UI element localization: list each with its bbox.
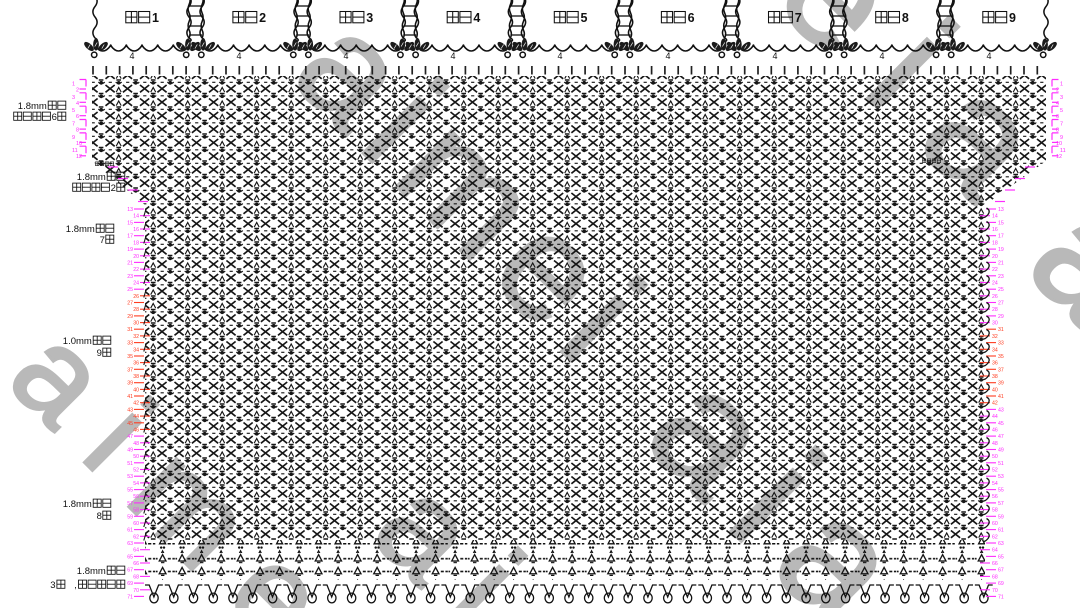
svg-text:26: 26	[992, 294, 998, 300]
svg-text:10: 10	[76, 141, 82, 147]
svg-text:46: 46	[992, 427, 998, 433]
svg-text:45: 45	[127, 421, 133, 427]
svg-text:58: 58	[992, 508, 998, 514]
svg-text:33: 33	[998, 341, 1004, 347]
svg-text:30: 30	[992, 321, 998, 327]
svg-text:47: 47	[127, 434, 133, 440]
svg-text:46: 46	[133, 427, 139, 433]
svg-text:1.0mm: 1.0mm	[63, 336, 92, 347]
svg-text:52: 52	[992, 468, 998, 474]
svg-text:21: 21	[127, 260, 133, 266]
svg-text:1.8mm: 1.8mm	[77, 172, 106, 183]
svg-text:4: 4	[343, 51, 348, 61]
svg-text:38: 38	[992, 374, 998, 380]
svg-text:4: 4	[450, 51, 455, 61]
svg-text:55: 55	[998, 488, 1004, 494]
svg-text:61: 61	[998, 528, 1004, 534]
svg-text:56: 56	[992, 494, 998, 500]
svg-text:7: 7	[1060, 122, 1063, 128]
svg-text:8: 8	[76, 128, 79, 134]
svg-text:9: 9	[97, 348, 102, 359]
svg-text:8: 8	[97, 511, 102, 522]
svg-text:44: 44	[133, 414, 139, 420]
svg-text:1: 1	[152, 11, 159, 25]
svg-text:1.8mm: 1.8mm	[63, 499, 92, 510]
svg-text:21: 21	[998, 260, 1004, 266]
svg-text:8: 8	[1056, 128, 1059, 134]
svg-text:48: 48	[133, 441, 139, 447]
svg-text:3: 3	[50, 580, 55, 591]
svg-text:13: 13	[998, 207, 1004, 213]
svg-text:53: 53	[998, 474, 1004, 480]
svg-text:19: 19	[127, 247, 133, 253]
svg-text:14: 14	[133, 214, 139, 220]
svg-text:24: 24	[992, 281, 998, 287]
svg-text:22: 22	[133, 267, 139, 273]
svg-text:7: 7	[72, 122, 75, 128]
svg-text:42: 42	[992, 401, 998, 407]
svg-text:15: 15	[998, 220, 1004, 226]
svg-text:15: 15	[127, 220, 133, 226]
svg-text:9: 9	[72, 135, 75, 141]
svg-text:43: 43	[127, 407, 133, 413]
svg-text:6: 6	[52, 112, 57, 123]
svg-text:53: 53	[127, 474, 133, 480]
svg-text:1: 1	[72, 82, 75, 88]
svg-text:63: 63	[127, 541, 133, 547]
svg-text:70: 70	[133, 588, 139, 594]
svg-text:25: 25	[127, 287, 133, 293]
svg-text:4: 4	[236, 51, 241, 61]
svg-text:41: 41	[998, 394, 1004, 400]
svg-text:4: 4	[473, 11, 480, 25]
svg-text:64: 64	[992, 548, 998, 554]
svg-text:34: 34	[133, 347, 139, 353]
svg-text:1.8mm: 1.8mm	[66, 224, 95, 235]
svg-text:4: 4	[76, 101, 79, 107]
svg-text:4: 4	[772, 51, 777, 61]
svg-text:13: 13	[127, 207, 133, 213]
svg-text:36: 36	[992, 361, 998, 367]
svg-text:20: 20	[133, 254, 139, 260]
svg-text:6: 6	[76, 114, 79, 120]
svg-text:,: ,	[74, 580, 77, 591]
svg-text:3: 3	[366, 11, 373, 25]
svg-text:51: 51	[998, 461, 1004, 467]
svg-text:4: 4	[879, 51, 884, 61]
svg-text:5: 5	[581, 11, 588, 25]
svg-text:6: 6	[688, 11, 695, 25]
svg-text:60: 60	[133, 521, 139, 527]
svg-text:34: 34	[992, 347, 998, 353]
svg-text:39: 39	[998, 381, 1004, 387]
svg-text:44: 44	[992, 414, 998, 420]
svg-text:17: 17	[127, 234, 133, 240]
svg-text:37: 37	[127, 367, 133, 373]
svg-text:66: 66	[133, 561, 139, 567]
svg-text:68: 68	[133, 574, 139, 580]
svg-text:8: 8	[902, 11, 909, 25]
svg-text:48: 48	[992, 441, 998, 447]
svg-text:51: 51	[127, 461, 133, 467]
svg-text:2: 2	[76, 88, 79, 94]
svg-text:2: 2	[1056, 88, 1059, 94]
svg-text:57: 57	[998, 501, 1004, 507]
svg-text:47: 47	[998, 434, 1004, 440]
svg-text:59: 59	[127, 514, 133, 520]
svg-text:37: 37	[998, 367, 1004, 373]
svg-text:54: 54	[133, 481, 139, 487]
svg-text:70: 70	[992, 588, 998, 594]
svg-text:36: 36	[133, 361, 139, 367]
svg-text:12: 12	[76, 154, 82, 160]
svg-text:12: 12	[1056, 154, 1062, 160]
svg-text:19: 19	[998, 247, 1004, 253]
svg-text:30: 30	[133, 321, 139, 327]
svg-text:40: 40	[133, 387, 139, 393]
svg-text:27: 27	[998, 301, 1004, 307]
svg-text:31: 31	[998, 327, 1004, 333]
svg-text:28: 28	[133, 307, 139, 313]
svg-text:28: 28	[992, 307, 998, 313]
svg-text:5: 5	[1060, 108, 1063, 114]
svg-text:10: 10	[1056, 141, 1062, 147]
svg-text:32: 32	[992, 334, 998, 340]
svg-text:1.8mm: 1.8mm	[18, 101, 47, 112]
svg-text:16: 16	[992, 227, 998, 233]
svg-text:27: 27	[127, 301, 133, 307]
svg-text:38: 38	[133, 374, 139, 380]
svg-text:24: 24	[133, 281, 139, 287]
svg-text:14: 14	[992, 214, 998, 220]
svg-text:49: 49	[127, 448, 133, 454]
svg-text:5: 5	[72, 108, 75, 114]
svg-text:57: 57	[127, 501, 133, 507]
svg-text:68: 68	[992, 574, 998, 580]
svg-text:4: 4	[665, 51, 670, 61]
svg-text:7: 7	[100, 235, 105, 246]
svg-text:7: 7	[795, 11, 802, 25]
svg-text:69: 69	[998, 581, 1004, 587]
svg-text:39: 39	[127, 381, 133, 387]
svg-text:62: 62	[992, 534, 998, 540]
svg-text:35: 35	[998, 354, 1004, 360]
svg-text:26: 26	[133, 294, 139, 300]
svg-text:4: 4	[1056, 101, 1059, 107]
svg-text:4: 4	[129, 51, 134, 61]
svg-text:67: 67	[127, 568, 133, 574]
svg-text:33: 33	[127, 341, 133, 347]
svg-text:50: 50	[992, 454, 998, 460]
svg-text:42: 42	[133, 401, 139, 407]
svg-text:35: 35	[127, 354, 133, 360]
svg-text:20: 20	[992, 254, 998, 260]
svg-text:56: 56	[133, 494, 139, 500]
svg-text:69: 69	[127, 581, 133, 587]
svg-text:61: 61	[127, 528, 133, 534]
svg-text:18: 18	[133, 240, 139, 246]
svg-text:66: 66	[992, 561, 998, 567]
svg-text:50: 50	[133, 454, 139, 460]
svg-text:22: 22	[992, 267, 998, 273]
svg-text:31: 31	[127, 327, 133, 333]
svg-text:2: 2	[259, 11, 266, 25]
svg-text:23: 23	[998, 274, 1004, 280]
svg-text:9: 9	[1009, 11, 1016, 25]
svg-text:16: 16	[133, 227, 139, 233]
svg-text:63: 63	[998, 541, 1004, 547]
svg-text:45: 45	[998, 421, 1004, 427]
svg-text:32: 32	[133, 334, 139, 340]
svg-text:1.8mm: 1.8mm	[77, 566, 106, 577]
svg-text:71: 71	[998, 594, 1004, 600]
svg-text:54: 54	[992, 481, 998, 487]
svg-text:25: 25	[998, 287, 1004, 293]
svg-text:65: 65	[127, 554, 133, 560]
svg-text:62: 62	[133, 534, 139, 540]
svg-text:2: 2	[111, 183, 116, 194]
svg-text:4: 4	[557, 51, 562, 61]
svg-text:67: 67	[998, 568, 1004, 574]
svg-text:65: 65	[998, 554, 1004, 560]
svg-text:3: 3	[72, 95, 75, 101]
svg-text:3: 3	[1060, 95, 1063, 101]
svg-text:43: 43	[998, 407, 1004, 413]
svg-text:71: 71	[127, 594, 133, 600]
svg-text:17: 17	[998, 234, 1004, 240]
svg-text:4: 4	[986, 51, 991, 61]
svg-text:60: 60	[992, 521, 998, 527]
svg-text:1: 1	[1060, 82, 1063, 88]
svg-text:29: 29	[127, 314, 133, 320]
svg-text:64: 64	[133, 548, 139, 554]
svg-text:6: 6	[1056, 114, 1059, 120]
svg-text:59: 59	[998, 514, 1004, 520]
svg-text:55: 55	[127, 488, 133, 494]
svg-text:58: 58	[133, 508, 139, 514]
svg-text:41: 41	[127, 394, 133, 400]
svg-text:40: 40	[992, 387, 998, 393]
svg-text:49: 49	[998, 448, 1004, 454]
svg-text:52: 52	[133, 468, 139, 474]
svg-text:23: 23	[127, 274, 133, 280]
svg-text:18: 18	[992, 240, 998, 246]
svg-text:29: 29	[998, 314, 1004, 320]
